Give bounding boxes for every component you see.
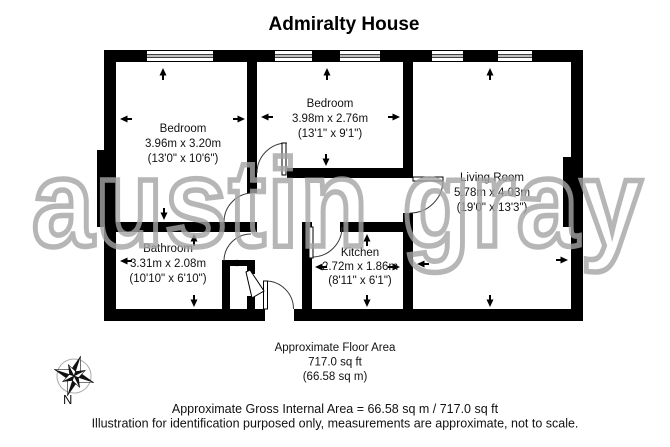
window-glass [432, 51, 463, 61]
dim-arrow-up [160, 68, 167, 80]
dim-arrow-down [191, 295, 198, 307]
window [432, 51, 463, 61]
compass-rose [48, 350, 101, 403]
room-name: Bedroom [307, 98, 354, 110]
room-size-imperial: (10'10" x 6'10") [129, 273, 206, 285]
door-leaf-closet [246, 270, 264, 298]
window-glass [275, 51, 312, 61]
room-size-imperial: (8'11" x 6'1") [328, 275, 392, 287]
dim-arrow-up [324, 68, 331, 80]
compass-north-label: N [63, 392, 72, 407]
floorplan-canvas: Admiralty House [0, 0, 670, 447]
door-arc-entrance [266, 281, 294, 309]
door-leaf-entrance [264, 281, 268, 309]
gross-internal-area-text: Approximate Gross Internal Area = 66.58 … [172, 402, 499, 416]
floor-area-sqm: (66.58 sq m) [303, 371, 368, 383]
floor-area-title: Approximate Floor Area [275, 342, 396, 354]
floor-area-sqft: 717.0 sq ft [308, 357, 363, 369]
floor-area-block: Approximate Floor Area 717.0 sq ft (66.5… [275, 342, 396, 383]
footer: Approximate Gross Internal Area = 66.58 … [92, 402, 579, 431]
dim-arrow-left [261, 114, 273, 121]
dim-arrow-down [487, 295, 494, 307]
window [340, 51, 380, 61]
disclaimer-text: Illustration for identification purposed… [92, 417, 579, 431]
window [498, 51, 532, 61]
dim-arrow-down [364, 295, 371, 307]
room-label-bedroom2: Bedroom 3.98m x 2.76m (13'1" x 9'1") [292, 98, 368, 140]
window [275, 51, 312, 61]
window-glass [340, 51, 380, 61]
room-name: Bedroom [160, 123, 207, 135]
watermark-text: austin gray [32, 135, 644, 273]
floorplan-page: Admiralty House [0, 0, 670, 447]
dim-arrow-left [120, 116, 132, 123]
window-glass [147, 51, 213, 61]
dim-arrow-right [233, 116, 245, 123]
wall-bottom-right [294, 309, 583, 321]
page-title: Admiralty House [269, 14, 420, 35]
room-size-metric: 3.98m x 2.76m [292, 113, 368, 125]
window [147, 51, 213, 61]
window-glass [498, 51, 532, 61]
dim-arrow-right [388, 114, 400, 121]
wall-bottom-left [104, 309, 265, 321]
compass: N [48, 350, 101, 407]
dim-arrow-up [487, 68, 494, 80]
wall-closet-right-lower [247, 296, 255, 309]
watermark: austin gray [32, 135, 644, 273]
